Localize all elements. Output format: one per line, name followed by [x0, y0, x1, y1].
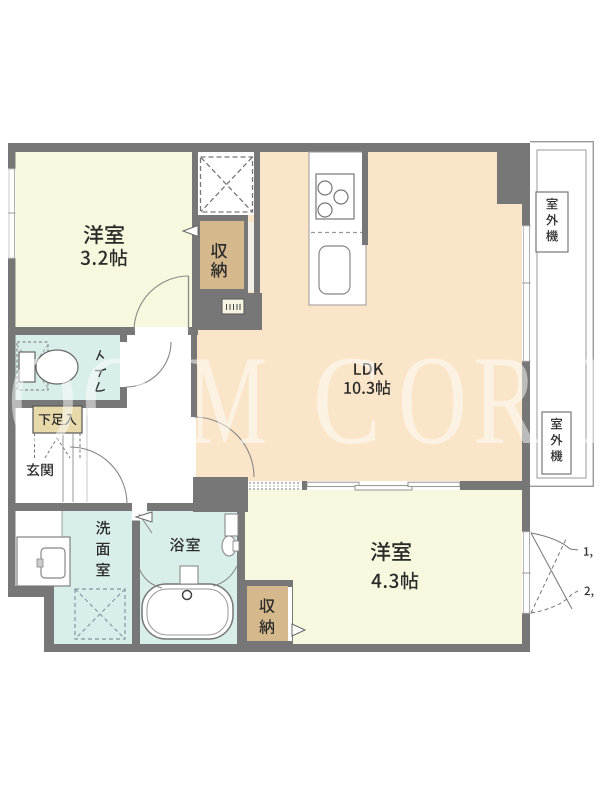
svg-text:E: E [580, 330, 600, 470]
svg-text:O: O [82, 331, 151, 471]
svg-text:C: C [313, 330, 381, 470]
svg-text:O: O [8, 331, 77, 471]
svg-text:R: R [0, 331, 4, 471]
svg-text:M: M [188, 329, 267, 470]
svg-text:O: O [398, 331, 467, 471]
svg-text:R: R [473, 330, 539, 471]
